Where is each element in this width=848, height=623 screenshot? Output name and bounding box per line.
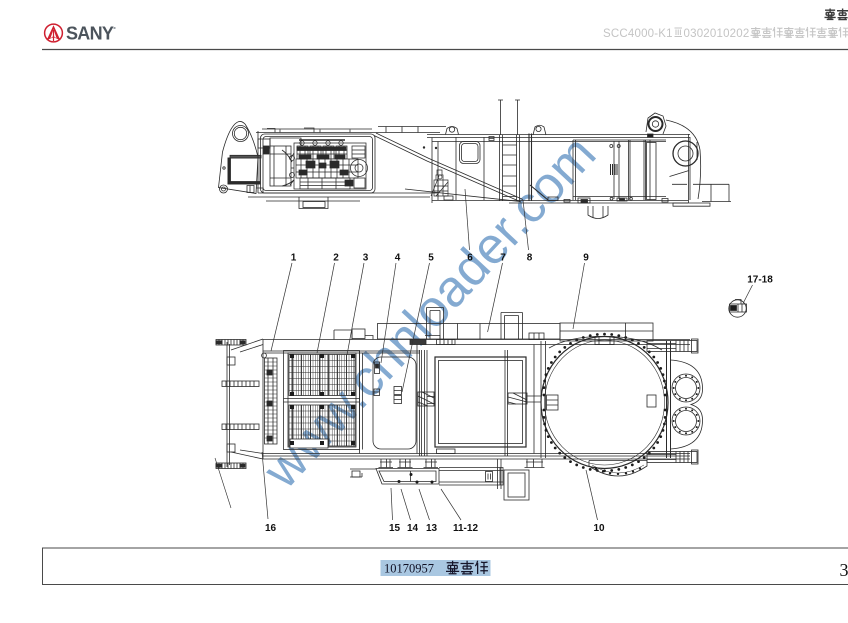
- svg-text:16: 16: [265, 523, 277, 534]
- svg-text:17-18: 17-18: [747, 275, 773, 286]
- svg-text:14: 14: [407, 523, 419, 534]
- svg-text:9: 9: [583, 253, 589, 264]
- svg-text:8: 8: [527, 253, 533, 264]
- svg-text:6: 6: [467, 253, 473, 264]
- svg-text:SANY: SANY: [66, 24, 114, 44]
- svg-text:10170957: 10170957: [384, 562, 434, 576]
- svg-text:4: 4: [395, 253, 401, 264]
- svg-text:10: 10: [593, 523, 605, 534]
- svg-text:5: 5: [428, 253, 434, 264]
- svg-text:15: 15: [389, 523, 401, 534]
- svg-text:SCC4000-K1: SCC4000-K1: [603, 28, 673, 40]
- svg-text:13: 13: [426, 523, 438, 534]
- svg-text:3: 3: [363, 253, 369, 264]
- svg-text:36: 36: [840, 560, 848, 580]
- svg-text:7: 7: [500, 253, 506, 264]
- svg-text:1: 1: [291, 253, 297, 264]
- svg-text:11-12: 11-12: [453, 523, 478, 534]
- svg-text:0302010202: 0302010202: [684, 28, 750, 40]
- svg-text:2: 2: [333, 253, 339, 264]
